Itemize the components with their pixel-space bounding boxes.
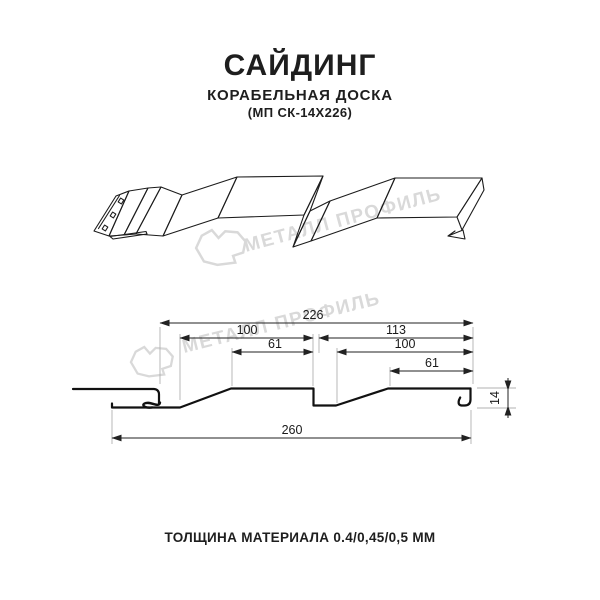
- dim-label-100-left: 100: [237, 323, 258, 337]
- right-hook: [459, 389, 471, 406]
- thickness-note: ТОЛЩИНА МАТЕРИАЛА 0.4/0,45/0,5 ММ: [0, 530, 600, 545]
- dimension-lines: [112, 320, 511, 440]
- profile-outline: [112, 389, 471, 408]
- dim-label-61-left: 61: [268, 337, 282, 351]
- watermark-text: МЕТАЛЛ ПРОФИЛЬ: [242, 184, 444, 257]
- watermark-upper: МЕТАЛЛ ПРОФИЛЬ: [196, 184, 444, 265]
- extension-lines: [112, 327, 516, 444]
- dim-label-260: 260: [282, 423, 303, 437]
- adjacent-panel-edge: [73, 389, 159, 403]
- cross-section-drawing: [73, 389, 471, 408]
- metall-profil-logo-icon: [131, 347, 173, 376]
- metall-profil-logo-icon: [196, 230, 245, 265]
- dim-label-14: 14: [488, 391, 502, 405]
- dim-label-113: 113: [386, 323, 406, 337]
- dim-label-226: 226: [303, 308, 324, 322]
- spec-sheet-page: САЙДИНГ КОРАБЕЛЬНАЯ ДОСКА (МП СК-14Х226)…: [0, 0, 600, 600]
- dim-label-61-right: 61: [425, 356, 439, 370]
- dim-label-100-right: 100: [395, 337, 416, 351]
- technical-drawing-canvas: МЕТАЛЛ ПРОФИЛЬ МЕТАЛЛ ПРОФИЛЬ: [0, 0, 600, 600]
